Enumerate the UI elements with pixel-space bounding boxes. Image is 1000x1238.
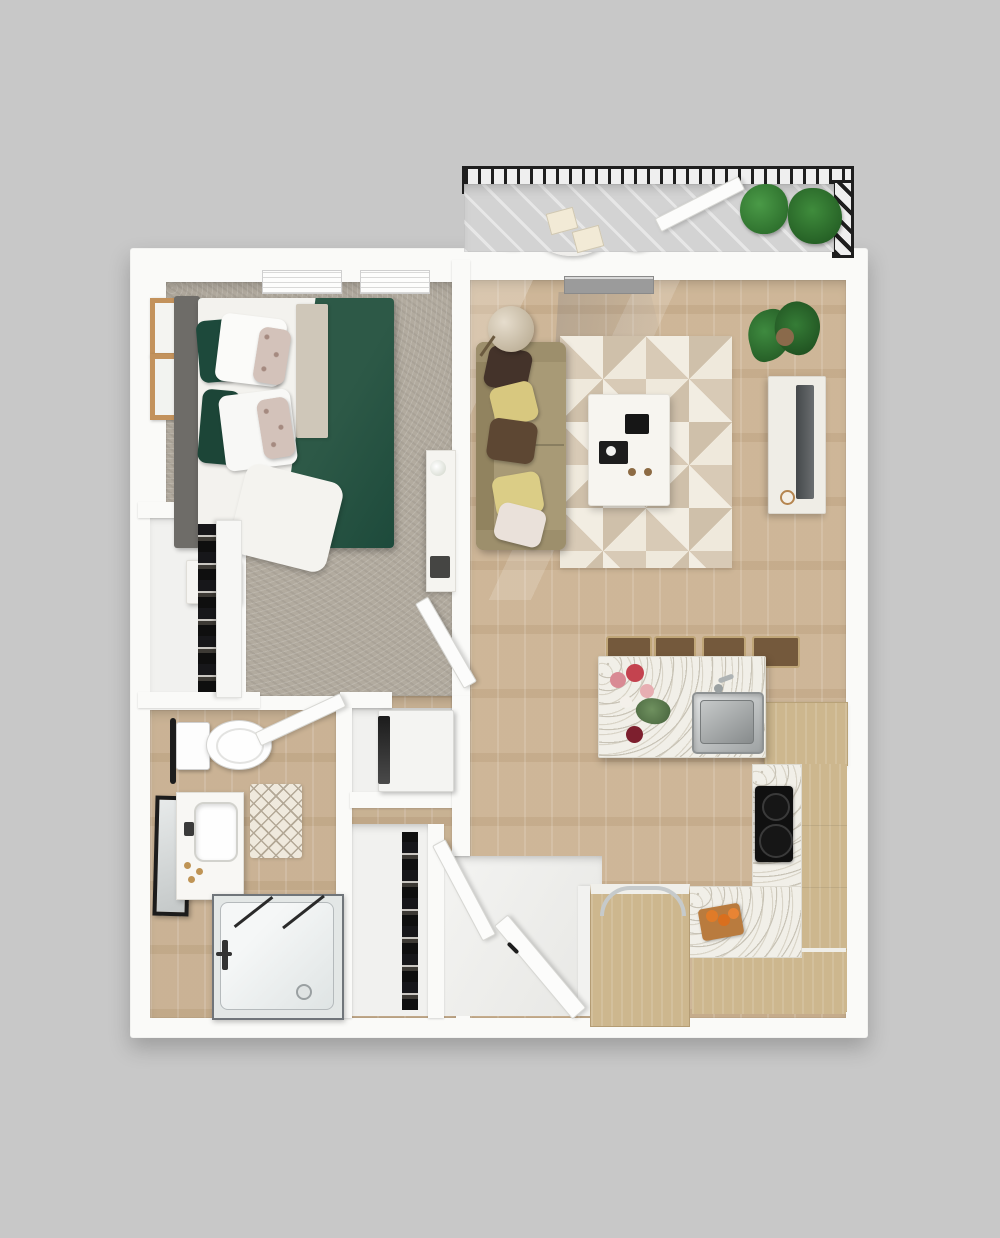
washer-door [378, 716, 390, 784]
tall-cabinet-fridge [764, 702, 848, 766]
closet-sliding-door [216, 520, 242, 698]
table-knob [644, 468, 652, 476]
towel-bar [170, 718, 176, 784]
table-knob [628, 468, 636, 476]
dish-rack-handle [600, 886, 686, 916]
potted-plant [788, 188, 842, 244]
flowers-decor [626, 664, 644, 682]
cooktop-burner [759, 824, 793, 858]
cooktop-burner [762, 793, 790, 821]
wall-washer-bottom [350, 792, 456, 808]
tv [796, 385, 814, 499]
cup [606, 446, 616, 456]
carrots [728, 908, 739, 919]
sink-basin [700, 700, 754, 744]
kitchen-faucet [714, 684, 723, 693]
sliding-door-threshold [564, 276, 654, 294]
closet-hanging-clothes [198, 524, 216, 692]
remote [625, 414, 649, 434]
dresser-flowers [430, 460, 446, 476]
flowers-decor [640, 684, 654, 698]
toilet-tank [176, 722, 210, 770]
tub-faucet-handle [216, 952, 232, 956]
wall-hall-living [452, 696, 470, 856]
gold-knob [188, 876, 195, 883]
linen-closet-shelves [402, 832, 418, 1010]
plant-pot [776, 328, 794, 346]
bedroom-window [262, 270, 342, 294]
throw-pillow-tan [485, 417, 538, 465]
tub-basin [220, 902, 334, 1010]
wall-bedroom-bottom-b [340, 692, 392, 708]
mug [780, 490, 795, 505]
dresser-tray [430, 556, 450, 578]
vanity-sink [194, 802, 238, 862]
floor-plan-canvas [0, 0, 1000, 1238]
bedroom-window [360, 270, 430, 294]
sink-faucet [184, 822, 194, 836]
tub-drain [296, 984, 312, 1000]
gold-knob [184, 862, 191, 869]
living-plant [748, 302, 820, 368]
balcony [462, 166, 848, 252]
flowers-decor [620, 696, 632, 708]
carrots [706, 910, 718, 922]
linen-closet-interior [352, 824, 430, 1016]
floor-lamp [488, 306, 534, 352]
bed-blanket [296, 304, 328, 438]
bath-mat [250, 784, 302, 858]
gold-knob [196, 868, 203, 875]
flowers-decor [610, 672, 626, 688]
decor-plate [626, 726, 643, 743]
potted-plant [740, 184, 788, 234]
